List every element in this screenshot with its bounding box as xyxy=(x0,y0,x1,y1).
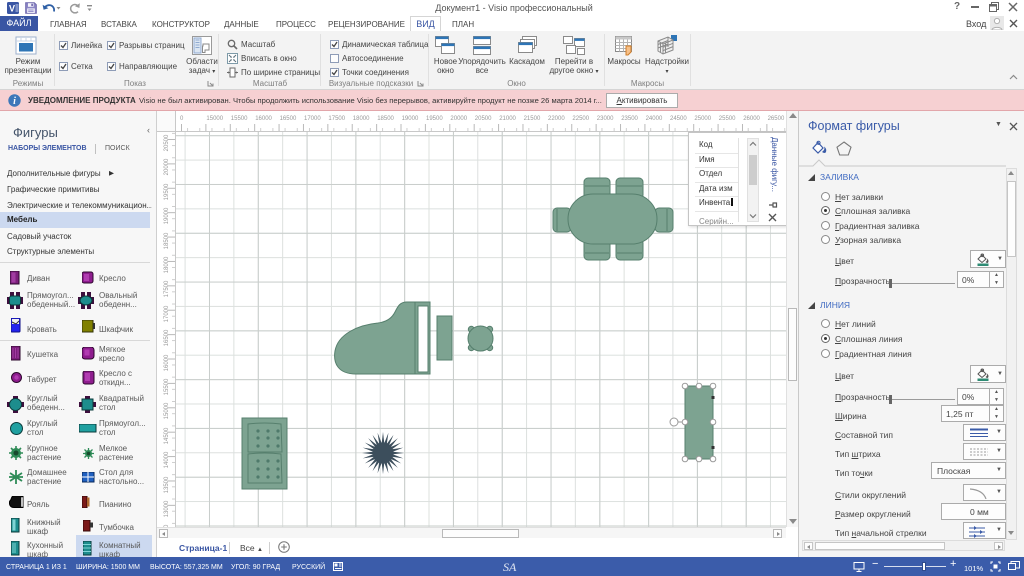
svg-text:V: V xyxy=(9,4,15,14)
svg-text:i: i xyxy=(13,96,16,107)
